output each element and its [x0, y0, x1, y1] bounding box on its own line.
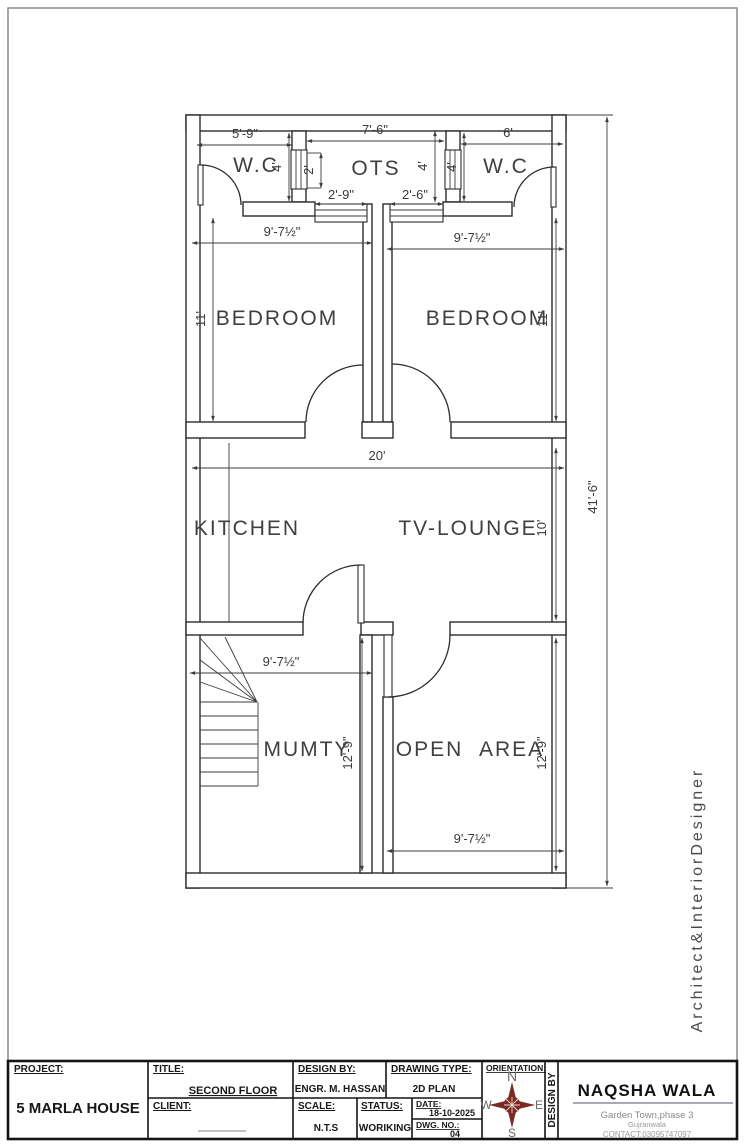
- svg-text:9'-7½": 9'-7½": [454, 831, 491, 846]
- room-label-wc-left: W.C: [233, 154, 279, 177]
- svg-text:4': 4': [444, 162, 459, 172]
- firm-address2: Gujranwala: [628, 1120, 667, 1129]
- wall-bottom: [186, 873, 566, 888]
- dim-bedroom-left-width: 9'-7½": [192, 224, 372, 243]
- status-label: STATUS:: [361, 1101, 403, 1112]
- design-by-vertical: DESIGN BY: [547, 1072, 558, 1127]
- scale-value: N.T.S: [314, 1123, 339, 1134]
- stairs: [200, 637, 258, 786]
- room-label-bedroom-right: BEDROOM: [426, 307, 549, 330]
- wall-kitchen-bottom-3: [450, 622, 566, 635]
- title-value: SECOND FLOOR: [189, 1085, 278, 1097]
- firm-name: NAQSHA WALA: [578, 1081, 717, 1100]
- svg-text:9'-7½": 9'-7½": [263, 654, 300, 669]
- wall-kitchen-bottom-2: [361, 622, 393, 635]
- title-block: PROJECT: 5 MARLA HOUSE TITLE: SECOND FLO…: [8, 1061, 737, 1140]
- svg-text:20': 20': [369, 448, 386, 463]
- dim-lounge-width: 20': [192, 448, 564, 468]
- wall-wcband-1: [243, 202, 315, 216]
- title-label: TITLE:: [153, 1064, 184, 1075]
- svg-text:2'-6": 2'-6": [402, 187, 428, 202]
- drawing-sheet: 5'-9" 7'-6" 6' 4' 2' 4' 4': [0, 0, 745, 1146]
- firm-contact: CONTACT:03095747097: [603, 1130, 692, 1139]
- drawing-type-value: 2D PLAN: [413, 1084, 456, 1095]
- window-ots-bottom-left: [315, 204, 367, 222]
- door-bedroom-right: [392, 364, 450, 422]
- compass-hub-hatch: [504, 1097, 520, 1113]
- compass-e: E: [535, 1098, 543, 1112]
- window-ots-bottom-right: [390, 204, 443, 222]
- scale-label: SCALE:: [298, 1101, 335, 1112]
- compass-rose: N E S W: [480, 1068, 543, 1140]
- wall-kitchen-bottom-1: [186, 622, 303, 635]
- room-label-wc-right: W.C: [483, 155, 529, 178]
- design-by-value: ENGR. M. HASSAN: [295, 1084, 386, 1095]
- wall-bedroom-bottom-3: [451, 422, 566, 438]
- room-label-kitchen: KITCHEN: [194, 517, 300, 540]
- svg-text:9'-7½": 9'-7½": [264, 224, 301, 239]
- wall-openarea-left: [383, 697, 393, 873]
- compass-s: S: [508, 1126, 516, 1140]
- door-open-area: [384, 635, 450, 697]
- room-label-bedroom-left: BEDROOM: [216, 307, 339, 330]
- dim-ots-window-left: 2'-9": [315, 187, 367, 204]
- svg-text:6': 6': [503, 125, 513, 140]
- dim-bedroom-right-width: 9'-7½": [387, 230, 564, 249]
- wall-wcband-2: [443, 202, 512, 216]
- svg-text:9'-7½": 9'-7½": [454, 230, 491, 245]
- project-value: 5 MARLA HOUSE: [16, 1100, 140, 1117]
- compass-n: N: [507, 1068, 517, 1084]
- project-label: PROJECT:: [14, 1064, 63, 1075]
- client-label: CLIENT:: [153, 1101, 191, 1112]
- dim-overall-depth: 41'-6": [566, 115, 613, 888]
- floor-plan-svg: 5'-9" 7'-6" 6' 4' 2' 4' 4': [0, 0, 745, 1146]
- svg-text:2'-9": 2'-9": [328, 187, 354, 202]
- compass-w: W: [480, 1098, 492, 1112]
- wall-left: [186, 115, 200, 888]
- wall-bedroom-mid-1: [363, 204, 372, 422]
- svg-text:5'-9": 5'-9": [232, 126, 258, 141]
- door-bedroom-left: [306, 365, 363, 422]
- room-label-tv-lounge: TV-LOUNGE: [398, 517, 537, 540]
- status-value: WORIKING: [359, 1123, 411, 1134]
- wall-bedroom-bottom-2: [362, 422, 393, 438]
- svg-text:2': 2': [301, 165, 316, 175]
- wall-bedroom-mid-2: [383, 204, 392, 422]
- dwg-no-value: 04: [450, 1129, 460, 1139]
- wall-bedroom-bottom-1: [186, 422, 305, 438]
- room-label-open-area: OPEN AREA: [396, 738, 544, 761]
- date-value: 18-10-2025: [429, 1108, 475, 1118]
- svg-text:41'-6": 41'-6": [585, 480, 600, 514]
- svg-text:4': 4': [415, 161, 430, 171]
- branding-vertical-text: Architect&InteriorDesigner: [689, 768, 706, 1033]
- room-label-mumty: MUMTY: [264, 738, 351, 761]
- room-label-ots: OTS: [351, 157, 400, 180]
- design-by-label: DESIGN BY:: [298, 1064, 356, 1075]
- dim-open-area-width: 9'-7½": [387, 831, 564, 851]
- wall-right: [552, 115, 566, 888]
- svg-text:11': 11': [193, 311, 208, 327]
- drawing-type-label: DRAWING TYPE:: [391, 1064, 472, 1075]
- door-kitchen: [303, 565, 364, 623]
- svg-text:7'-6": 7'-6": [362, 122, 388, 137]
